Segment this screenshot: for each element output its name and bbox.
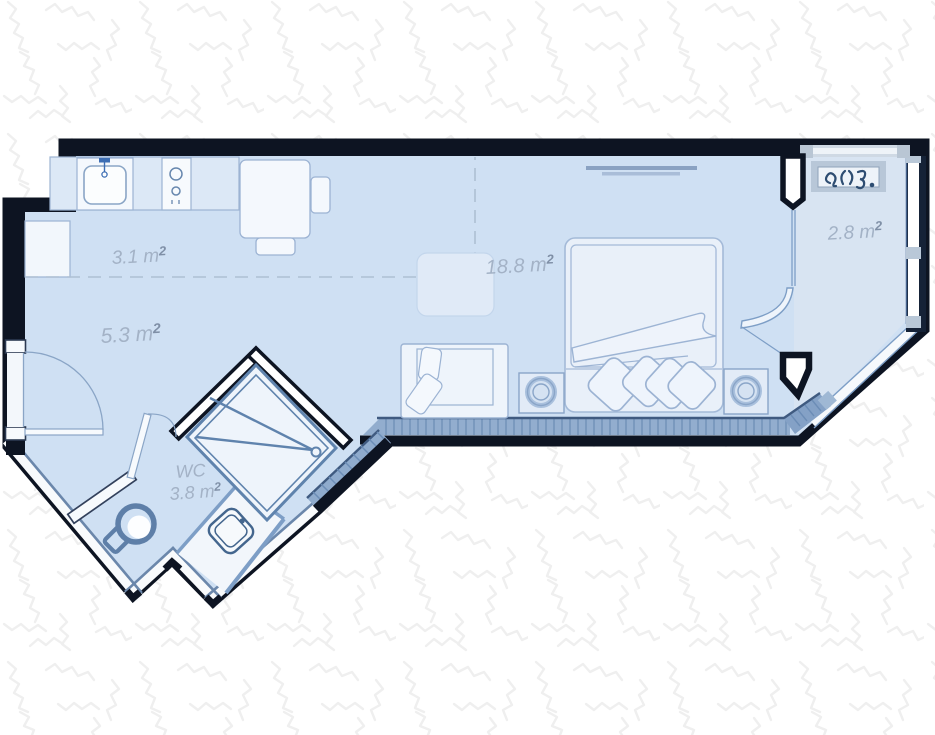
svg-text:3.1 m2: 3.1 m2 — [111, 243, 168, 269]
svg-text:5.3 m2: 5.3 m2 — [100, 320, 162, 348]
svg-text:3.8 m2: 3.8 m2 — [169, 479, 222, 504]
svg-text:WC: WC — [175, 460, 207, 482]
svg-text:18.8 m2: 18.8 m2 — [485, 251, 555, 279]
